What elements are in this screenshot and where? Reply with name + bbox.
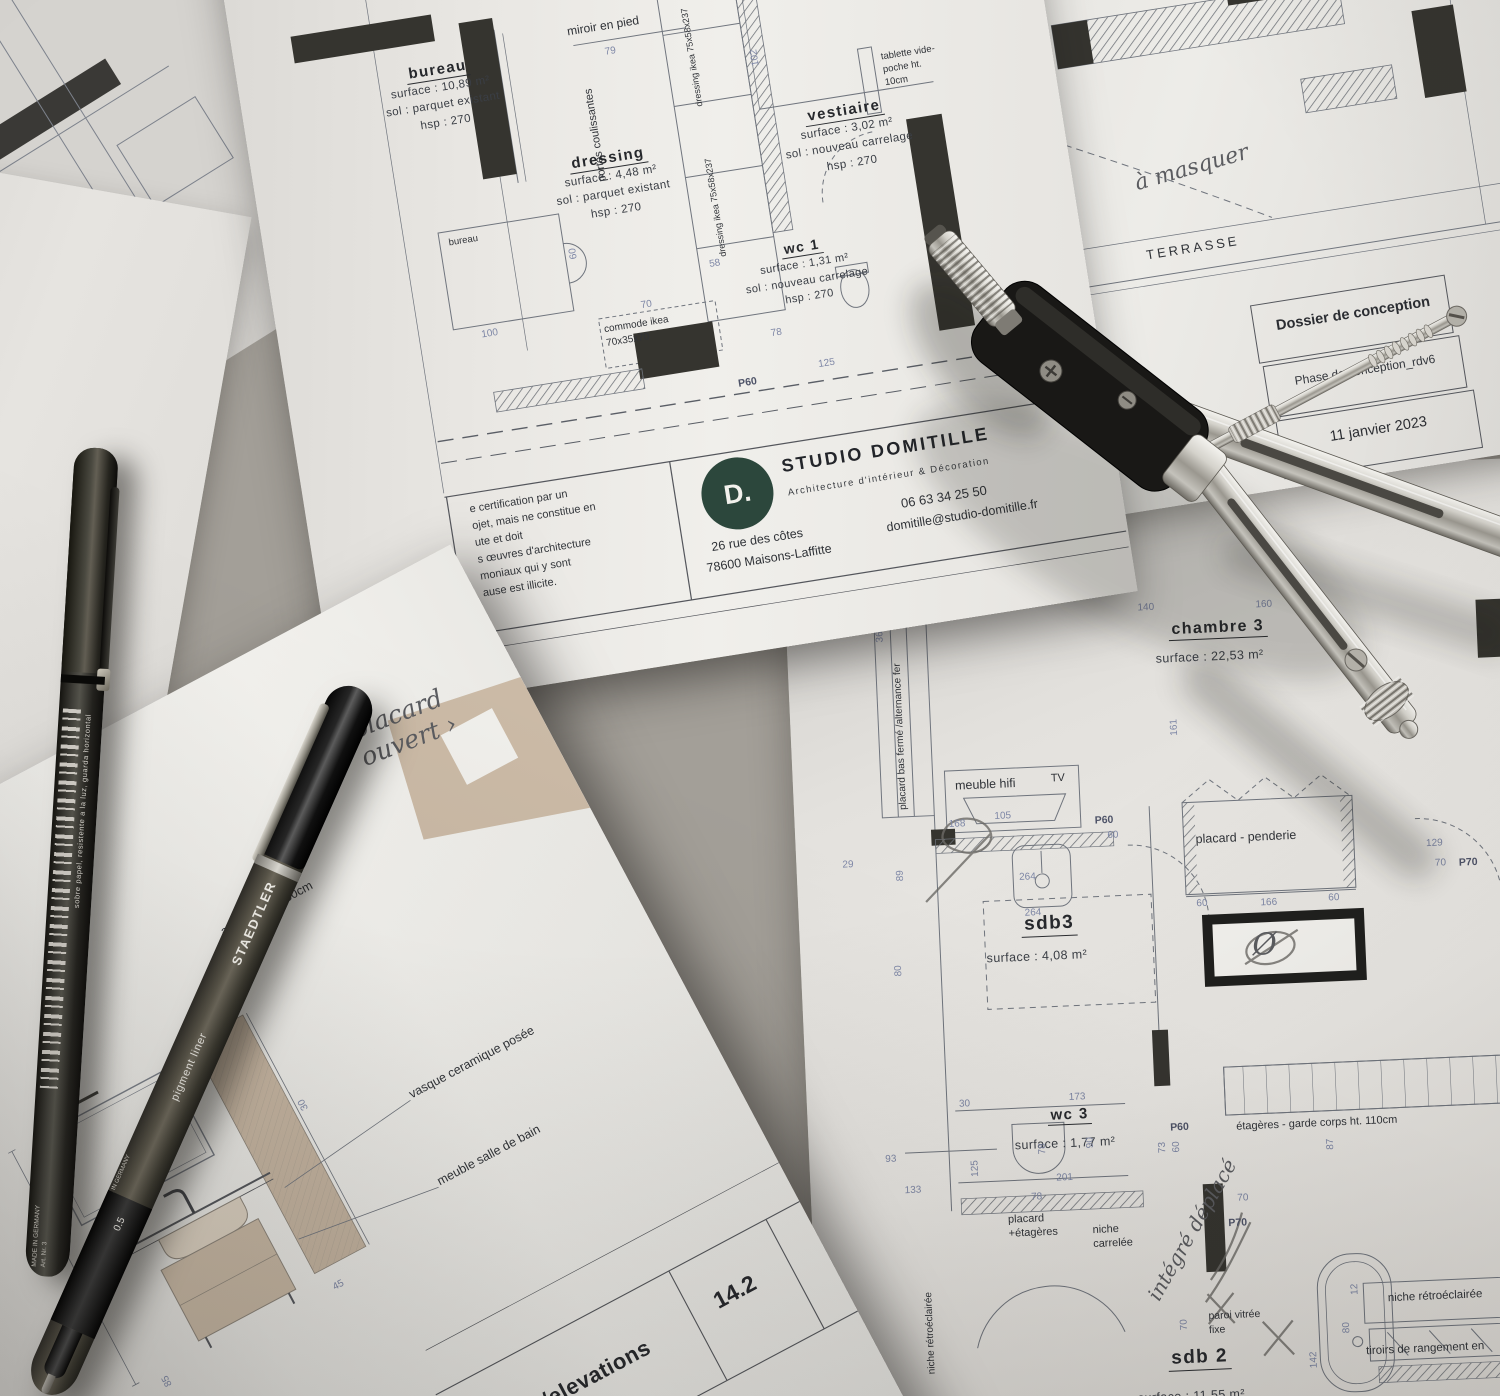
dim-78-a: 78: [1037, 1143, 1048, 1155]
paroi-vitree-fixe-label: paroi vitrée fixe: [1208, 1308, 1261, 1338]
dim-73: 73: [1157, 1142, 1168, 1154]
dim-89: 89: [895, 870, 906, 882]
dim-78: 78: [770, 327, 783, 340]
dim-70-b: 70: [1237, 1192, 1249, 1203]
dim-93: 93: [885, 1154, 897, 1165]
dim-p70-b: P70: [1228, 1216, 1247, 1229]
dim-105: 105: [994, 810, 1011, 822]
meuble-hifi-label: meuble hifi: [955, 776, 1016, 793]
dim-60-desk: 60: [567, 247, 580, 260]
room-wc3: wc 3: [1047, 1105, 1092, 1126]
dim-p70-a: P70: [1459, 856, 1478, 869]
dim-70: 70: [640, 299, 653, 312]
architectural-plans-photo: placard bas fermé /alternance fer 363 29…: [0, 0, 1500, 1396]
dim-80: 80: [893, 965, 904, 977]
dim-160: 160: [1255, 599, 1272, 611]
dim-125: 125: [969, 1160, 981, 1177]
room-sdb2: sdb 2: [1168, 1345, 1232, 1372]
dim-60-b: 60: [1196, 898, 1208, 909]
dim-166: 166: [1260, 897, 1277, 909]
tv-label: TV: [1051, 772, 1066, 785]
dim-173: 173: [1069, 1091, 1086, 1103]
dim-201: 201: [1056, 1172, 1073, 1184]
niche-carrelee-label: niche carrelée: [1092, 1220, 1155, 1251]
dim-90: 90: [1085, 1137, 1096, 1149]
dim-102: 102: [748, 49, 761, 67]
niche-retroeclairee-vertical-label: niche rétroéclairée: [921, 1243, 957, 1374]
dim-78-b: 78: [1031, 1191, 1043, 1202]
dim-79: 79: [604, 45, 617, 58]
dim-129: 129: [1426, 837, 1443, 849]
dim-70-a: 70: [1435, 857, 1447, 868]
dim-29: 29: [842, 859, 854, 870]
dim-30: 30: [959, 1098, 971, 1109]
placard-etageres-label: placard +étagères: [1008, 1209, 1085, 1241]
dim-161: 161: [1168, 719, 1180, 736]
dim-60-c: 60: [1328, 892, 1340, 903]
pen-point: [40, 1373, 55, 1395]
dim-87: 87: [1325, 1138, 1336, 1150]
dim-70-c: 70: [1179, 1319, 1190, 1331]
dim-264-a: 264: [1019, 871, 1036, 883]
dim-80-b: 80: [1341, 1322, 1352, 1334]
pen-made-text: MADE IN GERMANY Art. Nr. 3: [31, 1152, 54, 1268]
dim-168: 168: [949, 818, 966, 830]
dim-133: 133: [904, 1185, 921, 1197]
dim-60-d: 60: [1171, 1141, 1182, 1153]
dim-12: 12: [1349, 1283, 1360, 1295]
pen-cap-ring: [61, 674, 105, 685]
dim-p60-wc3: P60: [1170, 1121, 1189, 1134]
dim-142: 142: [1308, 1351, 1320, 1368]
room-sdb3: sdb3: [1021, 911, 1078, 937]
dim-140: 140: [1137, 602, 1154, 614]
hand-diameter-symbol: Ø: [1252, 927, 1278, 963]
dim-p60-hifi: P60: [1094, 814, 1113, 827]
dim-58: 58: [708, 257, 721, 270]
dim-60-hifi: 60: [1107, 830, 1119, 841]
